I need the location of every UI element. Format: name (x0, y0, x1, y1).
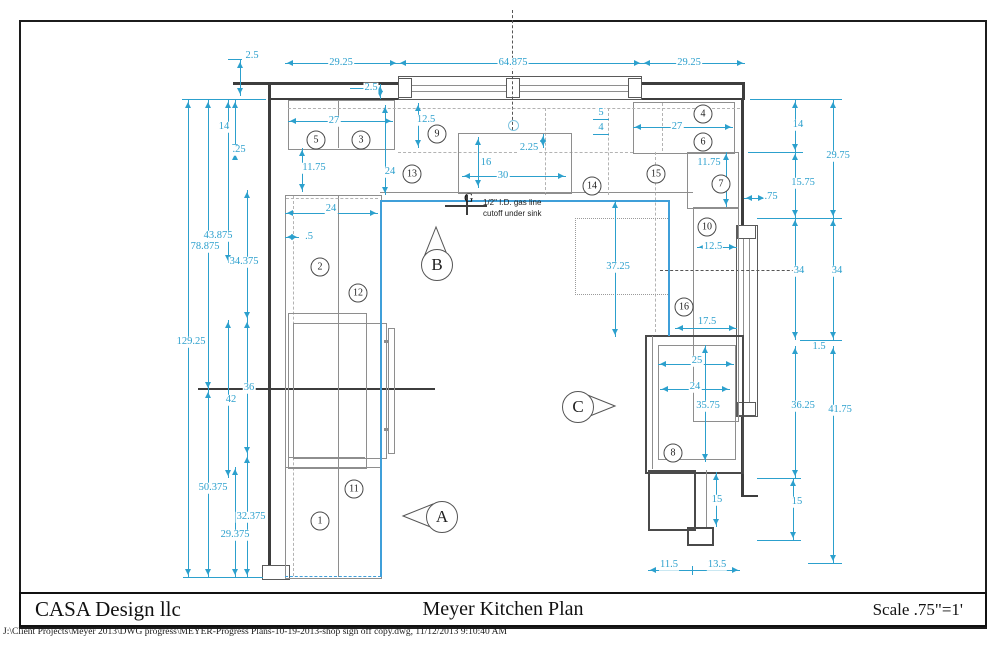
dimension-label: 27 (671, 122, 684, 133)
dimension-label: 24 (325, 204, 338, 215)
dimension-label: 13.5 (707, 560, 727, 571)
plan-linework (380, 200, 382, 577)
dimension-label: 43.875 (203, 231, 234, 242)
floor-plan: G 1/2" I.D. gas line cutoff under sink 2… (0, 0, 1000, 647)
plan-linework (398, 76, 642, 100)
plan-linework (741, 495, 758, 497)
dimension-label: 29.375 (220, 530, 251, 541)
plan-linework (384, 428, 389, 431)
dimension-label: 15 (711, 495, 724, 506)
dimension-label: 30 (497, 171, 510, 182)
dimension-label: .5 (304, 232, 314, 243)
plan-linework (384, 340, 389, 343)
plan-linework (462, 176, 566, 177)
item-bubble-9: 9 (428, 125, 447, 144)
plan-linework (793, 478, 794, 540)
plan-linework (741, 98, 744, 225)
plan-linework (737, 225, 756, 239)
dimension-label: 29.25 (676, 58, 702, 69)
dimension-label: 4 (597, 123, 604, 134)
item-bubble-11: 11 (345, 480, 364, 499)
item-bubble-5: 5 (307, 131, 326, 150)
plan-linework (687, 527, 714, 546)
dimension-label: .75 (763, 192, 778, 203)
item-bubble-16: 16 (675, 298, 694, 317)
item-bubble-15: 15 (647, 165, 666, 184)
drawing-title: Meyer Kitchen Plan (21, 598, 985, 621)
dimension-label: .25 (231, 145, 246, 156)
plan-linework (512, 10, 513, 130)
plan-linework (380, 84, 381, 99)
item-bubble-3: 3 (352, 131, 371, 150)
drawing-scale: Scale .75"=1' (873, 600, 963, 620)
plan-linework (286, 198, 378, 199)
dimension-label: 78.875 (190, 242, 221, 253)
dimension-label: 50.375 (198, 483, 229, 494)
dimension-label: 24 (384, 167, 397, 178)
dimension-label: 35.75 (695, 401, 721, 412)
dimension-label: 2.25 (519, 143, 539, 154)
section-marker-B: B (421, 249, 453, 281)
plan-linework (288, 121, 393, 122)
dimension-label: 64.875 (498, 58, 529, 69)
plan-linework (668, 200, 670, 336)
dimension-label: 29.25 (328, 58, 354, 69)
dimension-label: 16 (480, 158, 493, 169)
item-bubble-12: 12 (349, 284, 368, 303)
drawing-sheet: G 1/2" I.D. gas line cutoff under sink 2… (0, 0, 1000, 647)
plan-linework (288, 108, 740, 109)
plan-linework (418, 103, 419, 148)
dimension-label: 11.75 (301, 163, 326, 174)
plan-linework (795, 346, 796, 478)
item-bubble-14: 14 (583, 177, 602, 196)
file-path: J:\Client Projects\Meyer 2013\DWG progre… (3, 627, 507, 637)
plan-linework (675, 328, 737, 329)
section-marker-C: C (562, 391, 594, 423)
dimension-label: 42 (225, 395, 238, 406)
item-bubble-4: 4 (694, 105, 713, 124)
plan-linework (593, 134, 609, 135)
dimension-label: 34 (793, 266, 806, 277)
plan-linework (633, 102, 735, 154)
item-bubble-10: 10 (698, 218, 717, 237)
plan-linework (748, 152, 803, 153)
plan-linework (628, 78, 642, 98)
plan-linework (385, 105, 386, 195)
item-bubble-1: 1 (311, 512, 330, 531)
plan-linework (648, 470, 696, 531)
plan-linework (402, 91, 638, 92)
plan-linework (750, 99, 842, 100)
plan-linework (293, 323, 387, 459)
plan-linework (508, 120, 519, 131)
gas-note-line2: cutoff under sink (483, 209, 542, 220)
dimension-label: 14 (218, 122, 231, 133)
gas-note-line1: 1/2" I.D. gas line (483, 198, 541, 209)
item-bubble-2: 2 (311, 258, 330, 277)
plan-linework (642, 82, 745, 85)
dimension-label: 24 (689, 382, 702, 393)
dimension-label: 12.5 (416, 115, 436, 126)
dimension-label: 29.75 (825, 151, 851, 162)
plan-linework (182, 99, 266, 100)
dimension-label: 32.375 (236, 512, 267, 523)
gas-marker-label: G (464, 190, 473, 206)
plan-linework (398, 78, 412, 98)
plan-linework (506, 78, 520, 98)
dimension-label: 27 (328, 116, 341, 127)
plan-linework (808, 563, 842, 564)
plan-linework (652, 336, 653, 469)
plan-linework (833, 218, 834, 340)
plan-linework (402, 85, 638, 86)
dimension-label: 36.25 (790, 401, 816, 412)
dimension-label: 34 (831, 266, 844, 277)
dimension-label: 15.75 (790, 178, 816, 189)
dimension-label: 14 (792, 120, 805, 131)
plan-linework (285, 237, 299, 238)
plan-linework (268, 98, 271, 565)
dimension-label: 41.75 (827, 405, 853, 416)
section-marker-A: A (426, 501, 458, 533)
dimension-label: 15 (791, 497, 804, 508)
dimension-label: 11.75 (696, 158, 721, 169)
dimension-label: 2.5 (244, 51, 259, 62)
plan-linework (575, 218, 670, 295)
dimension-label: 17.5 (697, 317, 717, 328)
item-bubble-6: 6 (694, 133, 713, 152)
plan-linework (240, 60, 241, 96)
item-bubble-13: 13 (403, 165, 422, 184)
item-bubble-7: 7 (712, 175, 731, 194)
plan-linework (833, 346, 834, 563)
plan-linework (543, 134, 544, 148)
plan-linework (749, 229, 750, 411)
plan-linework (795, 218, 796, 340)
dimension-label: 34.375 (229, 257, 260, 268)
dimension-label: 37.25 (605, 262, 631, 273)
dimension-label: 1.5 (811, 342, 826, 353)
plan-linework (608, 108, 609, 195)
dimension-label: 2.5 (363, 83, 378, 94)
plan-linework (640, 98, 744, 100)
title-block: CASA Design llc Meyer Kitchen Plan Scale… (19, 592, 987, 627)
plan-linework (757, 540, 801, 541)
dimension-label: 5 (597, 108, 604, 119)
plan-linework (757, 478, 801, 479)
dimension-label: 36 (243, 383, 256, 394)
plan-linework (388, 328, 395, 454)
dimension-label: 12.5 (703, 242, 723, 253)
dimension-label: 11.5 (659, 560, 679, 571)
item-bubble-8: 8 (664, 444, 683, 463)
plan-linework (757, 218, 842, 219)
plan-linework (183, 577, 263, 578)
dimension-label: 25 (691, 356, 704, 367)
plan-linework (692, 566, 693, 575)
dimension-label: 129.25 (176, 337, 207, 348)
plan-linework (285, 576, 381, 577)
plan-linework (706, 470, 707, 527)
plan-linework (593, 119, 609, 120)
